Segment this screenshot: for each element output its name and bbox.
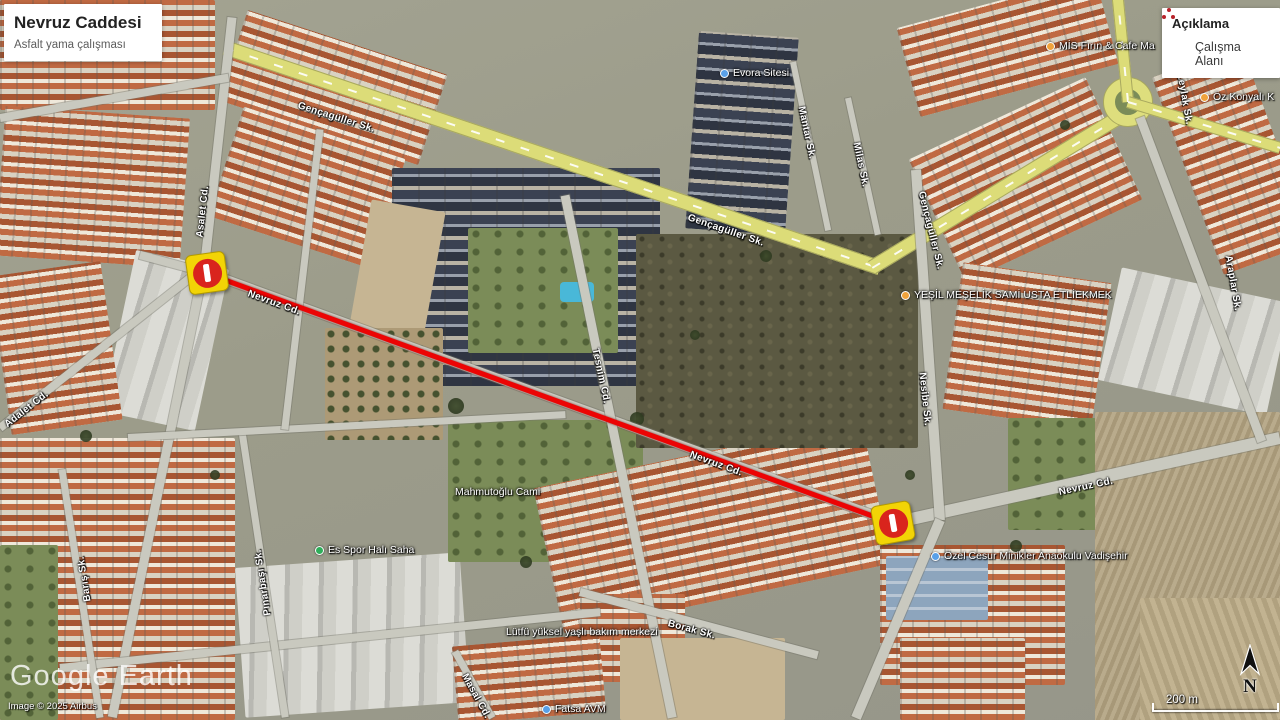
scale-label: 200 m (1166, 694, 1198, 706)
scale-bar (1152, 710, 1279, 712)
imagery-copyright: Image © 2025 Airbus (8, 701, 97, 712)
legend-item-label: Çalışma Alanı (1195, 40, 1270, 68)
poi-dot-icon (931, 552, 940, 561)
poi-dot-icon (315, 546, 324, 555)
poi-label: Mahmutoğlu Cami (455, 486, 540, 498)
road-segment (281, 129, 323, 430)
poi-label: MİS Fırın & Cafe Ma (1046, 40, 1155, 52)
poi-label: Fatsa AVM (542, 703, 606, 715)
work-info-panel: Nevruz Caddesi Asfalt yama çalışması (4, 4, 162, 61)
poi-dot-icon (901, 291, 910, 300)
poi-dot-icon (542, 705, 551, 714)
road-segment (1136, 116, 1266, 443)
road-segment (579, 588, 819, 659)
road-closed-icon (870, 500, 916, 546)
road-segment (561, 195, 677, 719)
work-area-symbol-icon (1172, 48, 1186, 60)
page-subtitle: Asfalt yama çalışması (14, 39, 152, 51)
legend-title: Açıklama (1172, 16, 1270, 31)
poi-label: YEŞİL MEŞELİK SAMİ USTA ETLİEKMEK (901, 289, 1112, 301)
road-layer (0, 0, 1280, 720)
legend-panel: Açıklama Çalışma Alanı (1162, 8, 1280, 78)
road-segment (868, 101, 1139, 274)
page-title: Nevruz Caddesi (14, 13, 152, 33)
poi-dot-icon (1046, 42, 1055, 51)
road-closed-icon (184, 250, 229, 295)
google-earth-viewport[interactable]: Gençagüller Sk.Gençagüller Sk.Gençagülle… (0, 0, 1280, 720)
north-arrow-icon (1236, 644, 1264, 678)
road-segment (851, 518, 944, 720)
poi-dot-icon (720, 69, 729, 78)
poi-dot-icon (1200, 93, 1209, 102)
road-segment (128, 411, 566, 441)
poi-label: Özel Cesur Minikler Anaokulu Vadişehir (931, 550, 1128, 562)
poi-label: Es Spor Halı Saha (315, 544, 414, 556)
google-earth-watermark: Google Earth (10, 660, 193, 693)
legend-item: Çalışma Alanı (1172, 40, 1270, 68)
compass-north-indicator: N (1236, 644, 1264, 706)
compass-n-label: N (1236, 676, 1264, 698)
poi-label: Lütfü yüksel yaşlı bakım merkezi (506, 626, 658, 638)
poi-label: Evora Sitesi (720, 67, 789, 79)
no-entry-sign-icon (191, 257, 224, 290)
no-entry-sign-icon (876, 506, 910, 540)
road-segment (0, 74, 229, 122)
poi-label: Öz Konyalı K (1200, 91, 1274, 103)
